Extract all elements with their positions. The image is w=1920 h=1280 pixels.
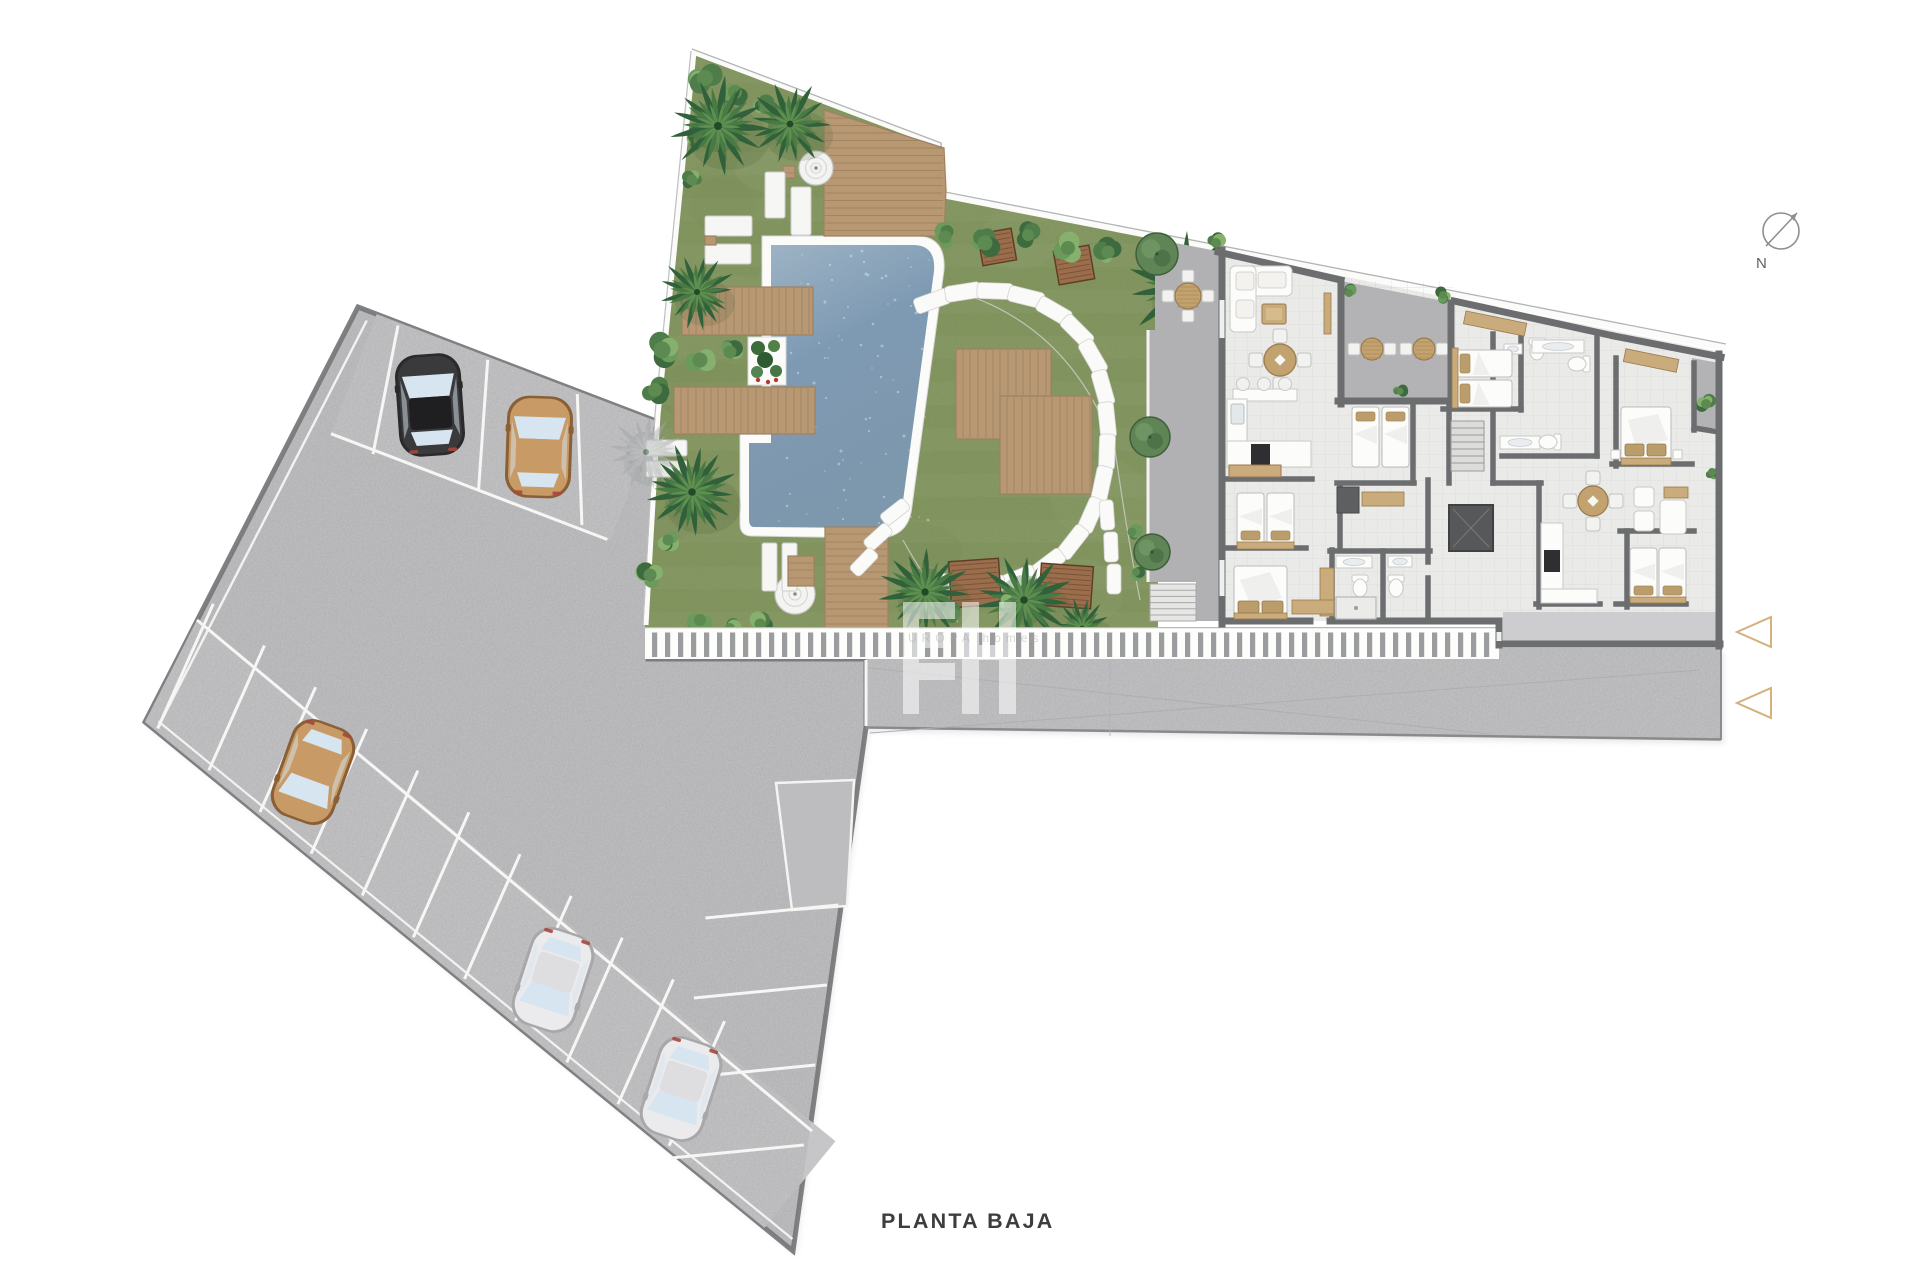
svg-text:N: N — [1756, 255, 1767, 272]
svg-text:PLANTA BAJA: PLANTA BAJA — [881, 1209, 1055, 1233]
svg-text:UROPA homes: UROPA homes — [908, 631, 1043, 645]
